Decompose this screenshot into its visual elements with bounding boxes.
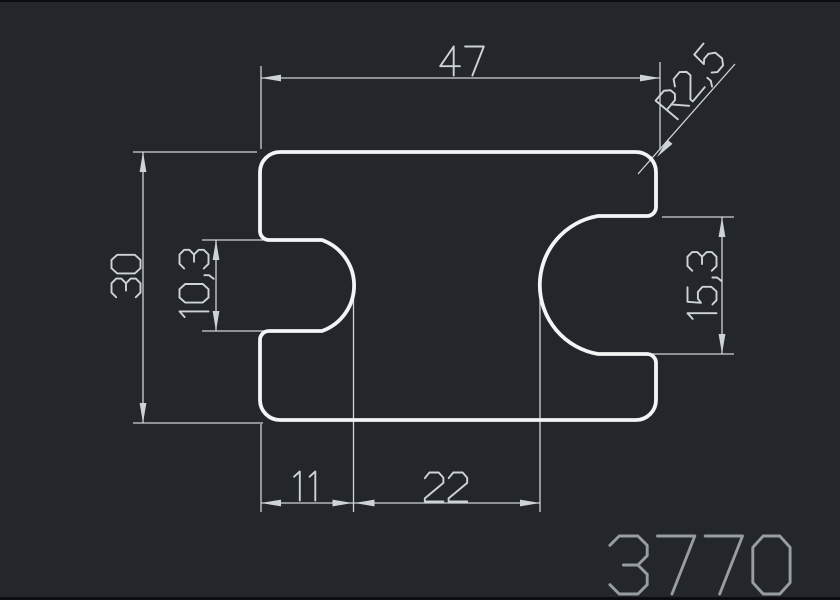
top-window-border (0, 0, 840, 2)
drawing-background (0, 0, 840, 600)
cad-viewport[interactable] (0, 0, 840, 600)
cad-drawing (0, 0, 840, 600)
